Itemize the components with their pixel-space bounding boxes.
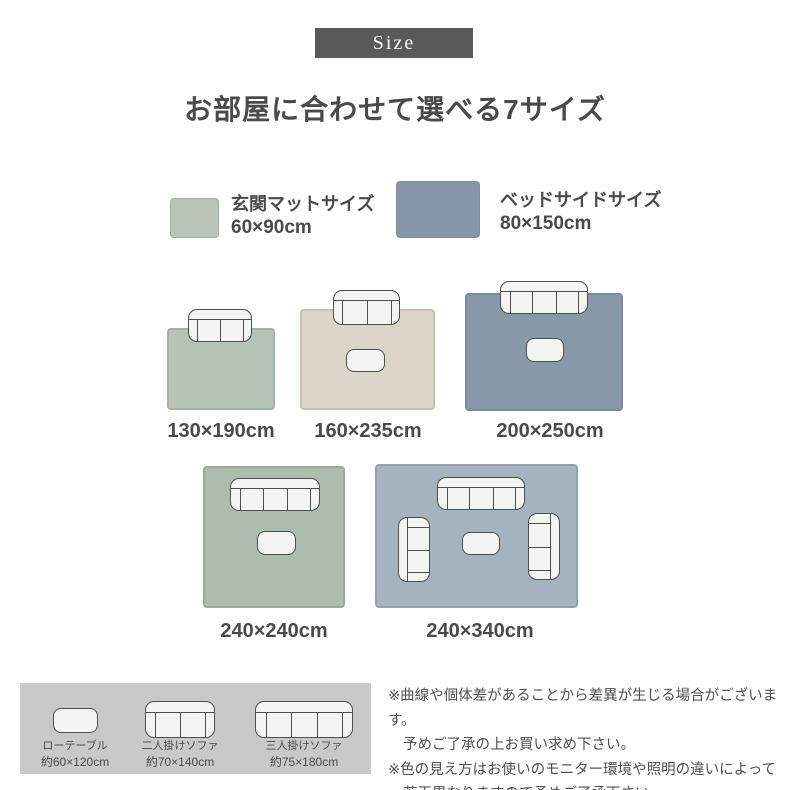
note-line: 予めご了承の上お買い求め下さい。 — [388, 733, 788, 758]
sofa-back-line — [500, 291, 588, 292]
rug-size-label: 240×340cm — [400, 620, 560, 643]
rug-size-label: 240×240cm — [194, 620, 354, 643]
three-seat-sofa-icon — [437, 477, 525, 510]
sofa-divider — [447, 487, 448, 510]
sofa-divider — [391, 300, 392, 325]
rug-size-label: 130×190cm — [141, 420, 301, 443]
sofa-divider — [407, 572, 430, 573]
low-table-icon — [346, 349, 385, 372]
note-line: ※色の見え方はお使いのモニター環境や照明の違いによって — [388, 758, 788, 783]
sofa-divider — [266, 712, 267, 738]
sofa-divider — [469, 487, 470, 510]
furniture-legend-item: 二人掛けソファ 約70×140cm — [115, 739, 245, 770]
two-seat-sofa-vertical-icon — [398, 517, 430, 582]
three-seat-sofa-icon — [500, 281, 588, 314]
sofa-divider — [528, 570, 551, 571]
sofa-divider — [317, 712, 318, 738]
size-badge-label: Size — [373, 32, 415, 55]
furniture-name: 二人掛けソファ — [115, 739, 245, 754]
sofa-divider — [155, 712, 156, 738]
two-seat-sofa-icon — [145, 701, 215, 738]
rug-size-label: 160×235cm — [288, 420, 448, 443]
sofa-divider — [205, 712, 206, 738]
sofa-divider — [197, 319, 198, 342]
sofa-divider — [367, 300, 368, 325]
sofa-divider — [240, 488, 241, 511]
three-seat-sofa-icon — [230, 478, 320, 511]
bedside-swatch — [396, 181, 480, 238]
sofa-divider — [310, 488, 311, 511]
furniture-size: 約75×180cm — [239, 754, 369, 770]
entrance-mat-label: 玄関マットサイズ — [231, 192, 374, 216]
bedside-label: ベッドサイドサイズ — [500, 188, 661, 212]
bedside-size: 80×150cm — [500, 212, 661, 236]
bedside-legend: ベッドサイドサイズ 80×150cm — [500, 188, 661, 236]
sofa-divider — [493, 487, 494, 510]
sofa-back-line — [437, 487, 525, 488]
sofa-divider — [342, 712, 343, 738]
sofa-divider — [243, 319, 244, 342]
furniture-name: 三人掛けソファ — [239, 739, 369, 754]
low-table-icon — [462, 532, 500, 555]
sofa-divider — [407, 527, 430, 528]
sofa-divider — [578, 291, 579, 314]
disclaimer-notes: ※曲線や個体差があることから差異が生じる場合がございます。 予めご了承の上お買い… — [388, 684, 788, 790]
sofa-divider — [180, 712, 181, 738]
low-table-icon — [257, 531, 296, 555]
two-seat-sofa-icon — [188, 309, 252, 342]
sofa-divider — [556, 291, 557, 314]
size-guide-page: Size お部屋に合わせて選べる7サイズ 玄関マットサイズ 60×90cm ベッ… — [0, 0, 790, 790]
sofa-back-line — [230, 488, 320, 489]
entrance-mat-swatch — [170, 198, 219, 238]
entrance-mat-size: 60×90cm — [231, 216, 374, 240]
sofa-divider — [532, 291, 533, 314]
sofa-divider — [220, 319, 221, 342]
sofa-divider — [291, 712, 292, 738]
furniture-size: 約70×140cm — [115, 754, 245, 770]
sofa-divider — [515, 487, 516, 510]
sofa-divider — [287, 488, 288, 511]
two-seat-sofa-icon — [333, 290, 400, 325]
sofa-divider — [510, 291, 511, 314]
note-line: 若干異なりますので予めご了承下さい。 — [388, 782, 788, 790]
page-title: お部屋に合わせて選べる7サイズ — [0, 88, 790, 128]
entrance-mat-legend: 玄関マットサイズ 60×90cm — [231, 192, 374, 240]
sofa-divider — [342, 300, 343, 325]
sofa-back-line — [255, 712, 353, 713]
three-seat-sofa-icon — [255, 701, 353, 738]
size-badge: Size — [315, 28, 473, 58]
two-seat-sofa-vertical-icon — [528, 513, 560, 580]
furniture-legend-item: 三人掛けソファ 約75×180cm — [239, 739, 369, 770]
sofa-divider — [263, 488, 264, 511]
note-line: ※曲線や個体差があることから差異が生じる場合がございます。 — [388, 684, 788, 733]
low-table-icon — [526, 338, 564, 362]
rug-size-label: 200×250cm — [470, 420, 630, 443]
low-table-icon — [53, 708, 98, 733]
sofa-divider — [528, 547, 551, 548]
sofa-divider — [407, 550, 430, 551]
sofa-divider — [528, 523, 551, 524]
